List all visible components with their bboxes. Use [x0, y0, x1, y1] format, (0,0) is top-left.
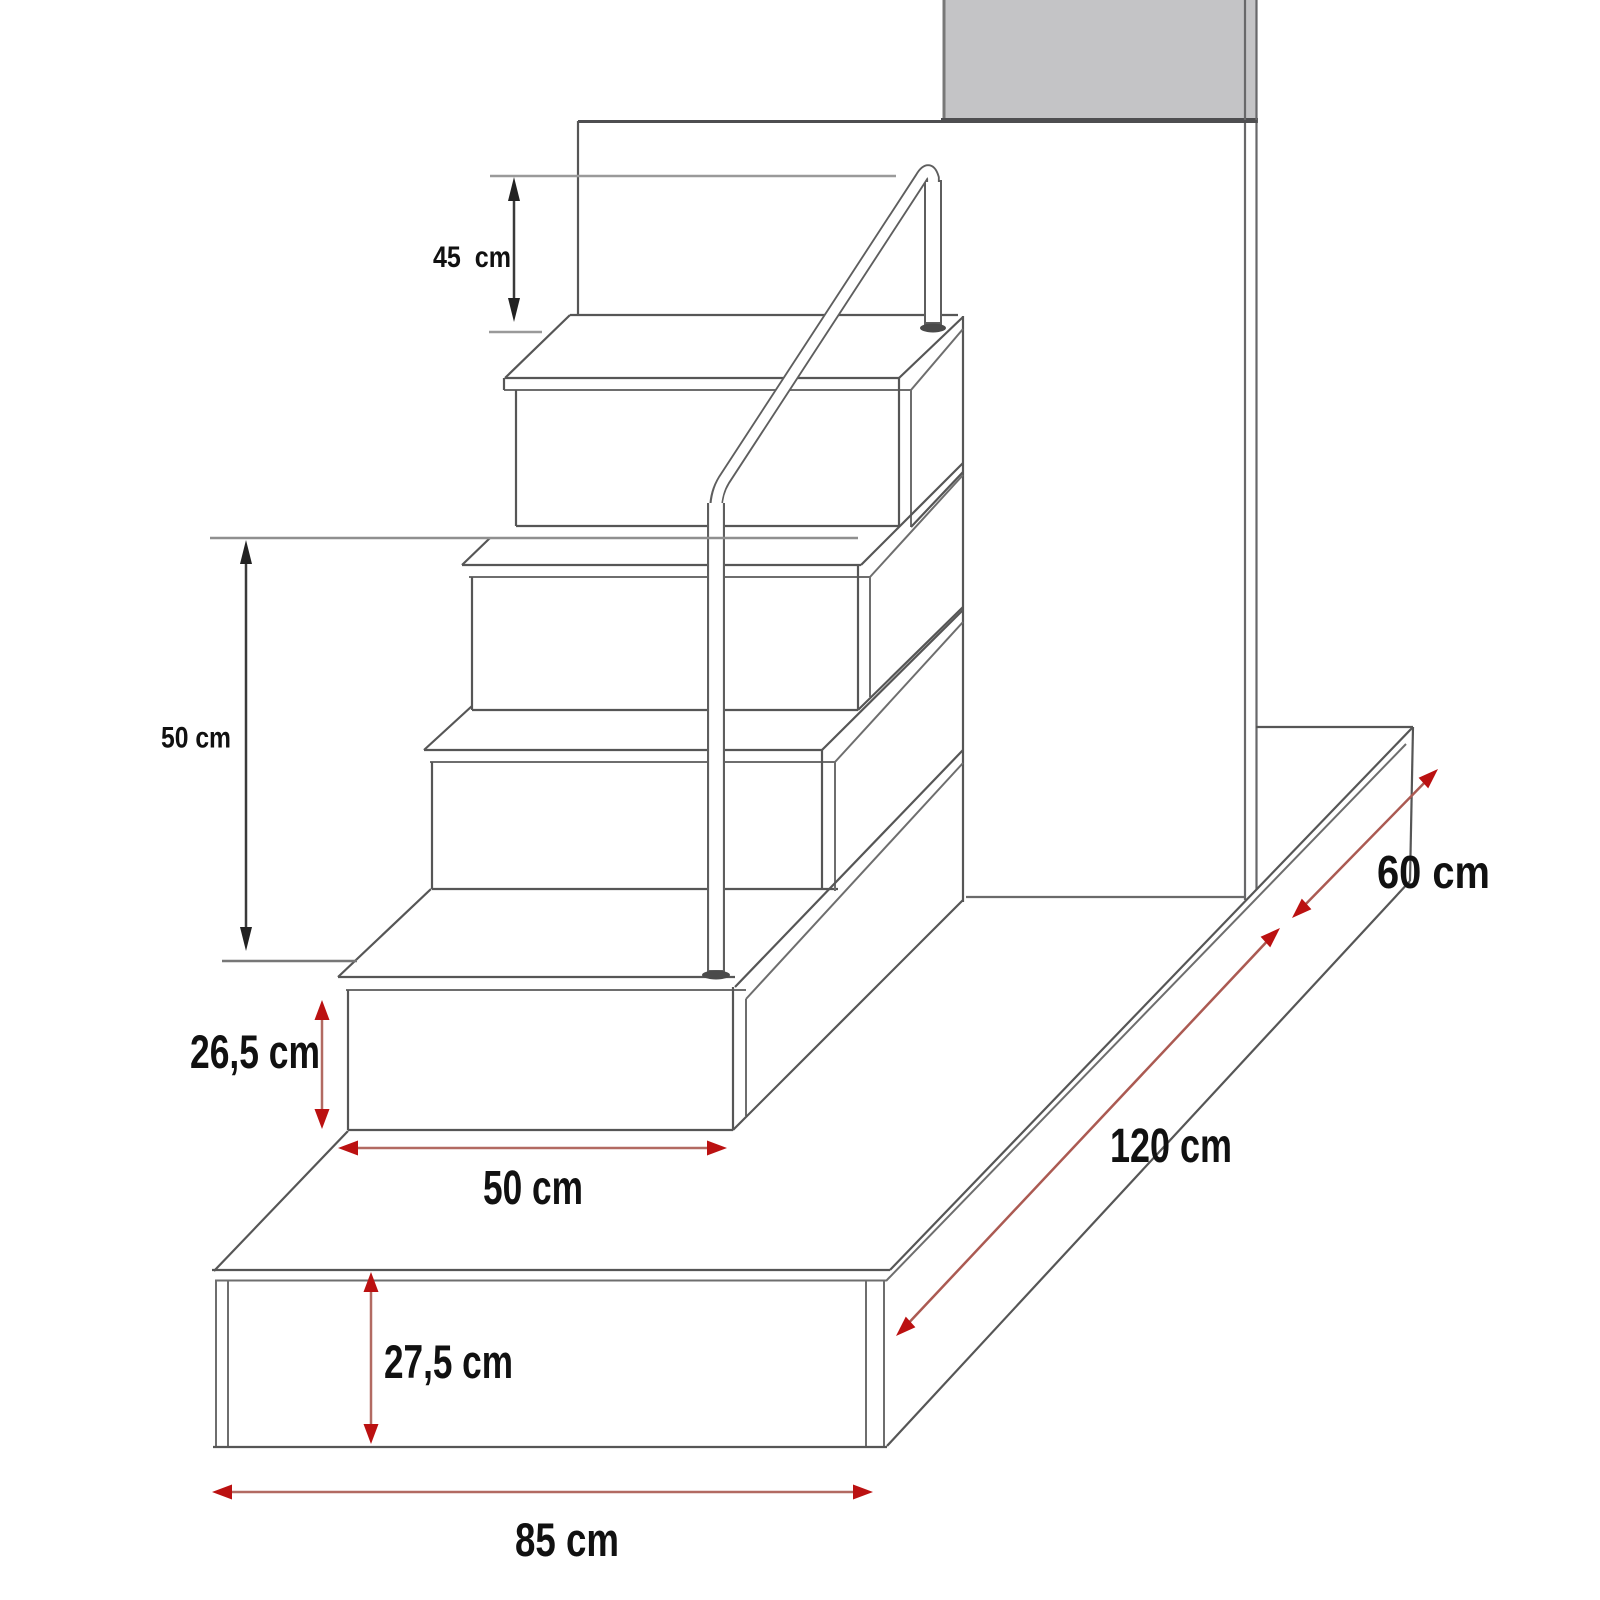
svg-text:26,5 cm: 26,5 cm	[190, 1025, 320, 1078]
svg-text:27,5 cm: 27,5 cm	[384, 1335, 513, 1388]
svg-text:50 cm: 50 cm	[483, 1162, 583, 1215]
svg-text:60 cm: 60 cm	[1377, 846, 1490, 898]
svg-text:50 cm: 50 cm	[161, 722, 231, 755]
svg-text:85 cm: 85 cm	[515, 1513, 619, 1566]
svg-text:120 cm: 120 cm	[1110, 1120, 1232, 1173]
svg-text:45 cm: 45 cm	[433, 241, 511, 274]
